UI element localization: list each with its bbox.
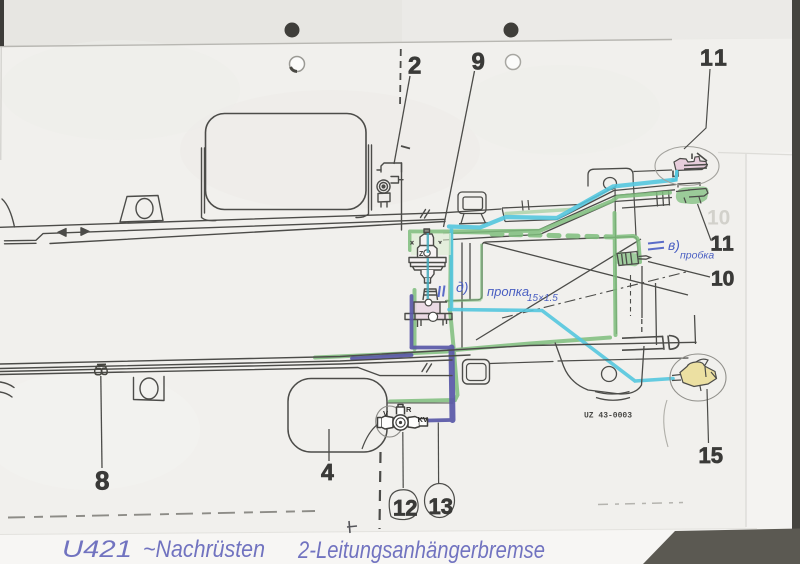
svg-text:2: 2 (408, 53, 421, 80)
svg-text:KV: KV (418, 415, 428, 424)
svg-text:Z: Z (419, 251, 424, 258)
svg-text:4: 4 (321, 459, 334, 485)
svg-text:15×1.5: 15×1.5 (527, 293, 558, 304)
svg-text:V: V (383, 409, 388, 418)
svg-text:10: 10 (711, 268, 734, 291)
svg-text:пропка: пропка (487, 284, 529, 299)
svg-text:д): д) (456, 279, 468, 295)
svg-text:11: 11 (700, 45, 729, 71)
svg-text:пробка: пробка (680, 250, 714, 262)
svg-text:в): в) (668, 237, 680, 253)
svg-text:UZ 43-0003: UZ 43-0003 (584, 412, 632, 421)
svg-text:11: 11 (711, 233, 735, 256)
svg-text:2-Leitungsanhängerbremse: 2-Leitungsanhängerbremse (297, 537, 545, 564)
svg-text:9: 9 (472, 49, 485, 76)
svg-text:12: 12 (393, 496, 417, 521)
svg-text:13: 13 (429, 494, 453, 519)
svg-text:U421: U421 (62, 536, 132, 563)
svg-text:R: R (406, 405, 412, 414)
svg-text:15: 15 (699, 443, 723, 468)
svg-text:8: 8 (95, 466, 109, 496)
svg-text:~Nachrüsten: ~Nachrüsten (143, 536, 265, 563)
svg-text:10: 10 (707, 207, 730, 230)
